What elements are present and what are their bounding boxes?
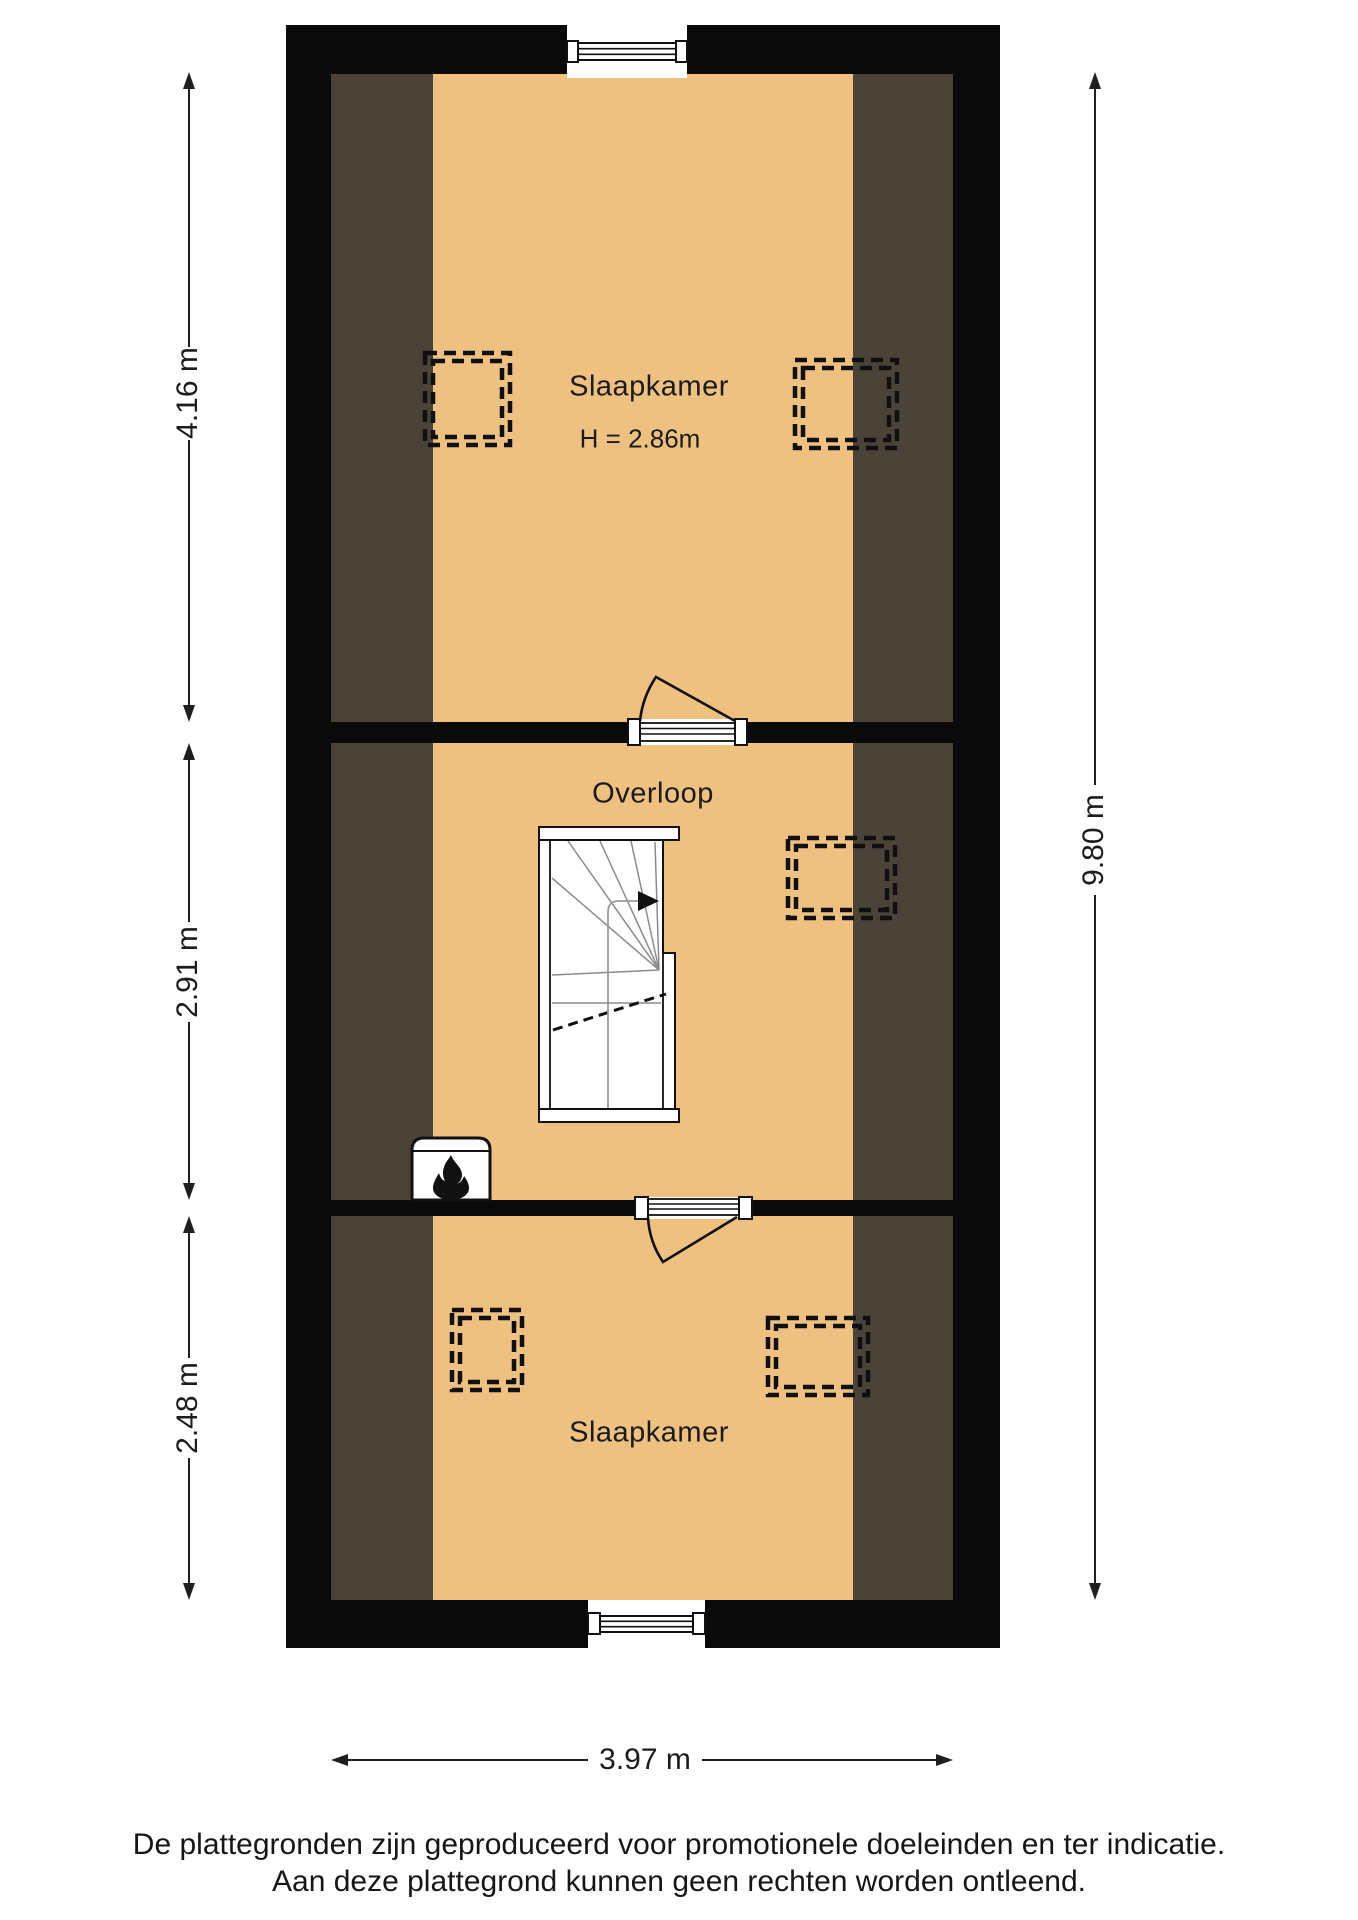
dimension-label-left-top: 4.16 m	[171, 347, 205, 439]
roof-window-top-left	[425, 353, 510, 445]
floorplan-canvas: Slaapkamer H = 2.86m Overloop Slaapkamer…	[0, 0, 1358, 1920]
roof-window-landing	[788, 838, 895, 918]
door-top	[628, 677, 747, 745]
disclaimer-line-1: De plattegronden zijn geproduceerd voor …	[0, 1826, 1358, 1863]
roof-window-bottom-left	[452, 1310, 522, 1390]
dimension-label-bottom-width: 3.97 m	[599, 1743, 691, 1777]
room-label-landing: Overloop	[592, 778, 714, 811]
dimension-label-left-middle: 2.91 m	[171, 926, 205, 1018]
stove	[412, 1138, 490, 1200]
door-bottom	[635, 1197, 752, 1262]
room-label-top-bedroom: Slaapkamer	[569, 371, 729, 404]
roof-window-top-right	[795, 360, 897, 448]
dimension-label-right-total: 9.80 m	[1077, 794, 1111, 886]
door-swing-arc	[640, 677, 735, 721]
window-top	[567, 25, 687, 78]
staircase	[539, 827, 679, 1122]
disclaimer: De plattegronden zijn geproduceerd voor …	[0, 1826, 1358, 1900]
door-swing-arc	[648, 1217, 737, 1262]
roof-window-bottom-right	[768, 1318, 868, 1395]
disclaimer-line-2: Aan deze plattegrond kunnen geen rechten…	[0, 1863, 1358, 1900]
window-bottom	[588, 1600, 705, 1648]
dimension-label-left-bottom: 2.48 m	[171, 1362, 205, 1454]
room-label-bottom-bedroom: Slaapkamer	[569, 1417, 729, 1450]
ceiling-height-label: H = 2.86m	[580, 424, 701, 455]
